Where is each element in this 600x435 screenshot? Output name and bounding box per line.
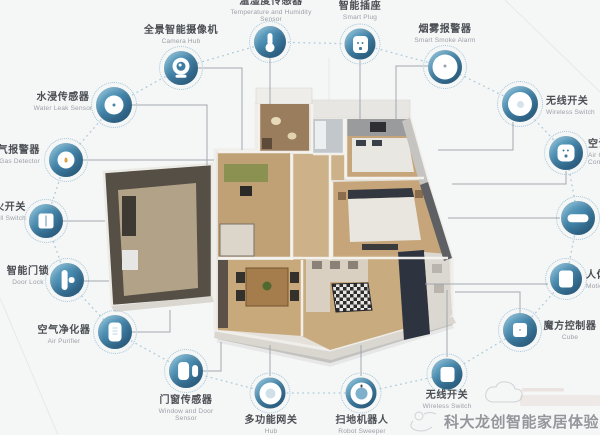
webcam-icon xyxy=(173,58,190,75)
smoke-detector-icon xyxy=(433,55,458,80)
round-button-icon xyxy=(508,92,532,116)
robot-sweeper-icon xyxy=(346,378,377,409)
cube-icon xyxy=(513,323,527,337)
motion-sensor-icon xyxy=(550,263,582,295)
wireless-switch-right-icon xyxy=(502,86,538,122)
camera-hub-icon xyxy=(164,51,198,85)
window-door-sensor-icon xyxy=(169,354,203,388)
smart-home-infographic: 水浸传感器Water Leak Sensor 全景智能摄像机Camera Hub… xyxy=(0,0,600,435)
ac-socket-icon xyxy=(558,145,575,162)
water-leak-sensor-icon xyxy=(96,87,132,123)
gateway-ring-icon xyxy=(259,382,281,404)
hub-icon xyxy=(255,378,286,409)
air-purifier-icon xyxy=(98,315,132,349)
door-lock-icon xyxy=(50,263,84,297)
sensor-body-icon xyxy=(559,271,573,288)
wall-switch-icon xyxy=(29,204,63,238)
purifier-icon xyxy=(109,323,122,342)
air-conditioning-companion-icon xyxy=(549,136,583,170)
gas-detector-icon xyxy=(49,143,83,177)
edge-device-icon xyxy=(561,201,595,235)
floor-plan-and-lines xyxy=(0,0,600,435)
door-window-icon xyxy=(178,362,189,380)
wireless-switch-bottom-icon xyxy=(432,359,463,390)
bar-icon xyxy=(568,214,589,222)
socket-icon xyxy=(353,36,368,53)
temperature-humidity-sensor-icon xyxy=(254,26,286,58)
smart-smoke-alarm-icon xyxy=(428,50,462,84)
thermometer-icon xyxy=(268,33,273,45)
water-drop-icon xyxy=(105,96,124,115)
flame-detector-icon xyxy=(58,152,75,169)
smart-plug-icon xyxy=(345,29,376,60)
robot-vacuum-icon xyxy=(350,382,372,404)
square-button-icon xyxy=(440,367,454,382)
watermark-text: 科大龙创智能家居体验 xyxy=(444,411,599,432)
cube-controller-icon xyxy=(503,313,537,347)
switch-panel-icon xyxy=(39,214,54,229)
floor-plan-3d xyxy=(104,88,456,360)
lock-handle-icon xyxy=(62,270,68,290)
